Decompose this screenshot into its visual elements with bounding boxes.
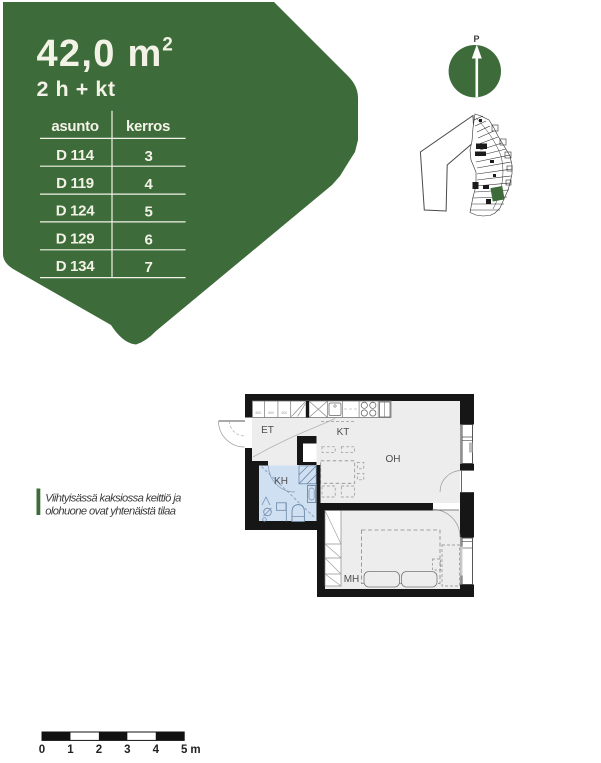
svg-text:m: m bbox=[190, 744, 200, 756]
svg-text:5: 5 bbox=[181, 744, 188, 756]
svg-text:3: 3 bbox=[124, 744, 130, 756]
svg-text:asunto: asunto bbox=[51, 118, 99, 135]
svg-text:kerros: kerros bbox=[126, 118, 170, 135]
svg-text:1: 1 bbox=[67, 744, 74, 756]
svg-text:2 h + kt: 2 h + kt bbox=[37, 77, 116, 101]
svg-text:2: 2 bbox=[96, 744, 102, 756]
svg-text:D 114: D 114 bbox=[56, 147, 95, 164]
svg-text:KT: KT bbox=[337, 427, 350, 438]
svg-text:D 124: D 124 bbox=[56, 203, 95, 220]
svg-text:7: 7 bbox=[144, 259, 152, 276]
svg-text:5: 5 bbox=[144, 204, 152, 221]
svg-text:D 129: D 129 bbox=[56, 230, 95, 247]
svg-text:600: 600 bbox=[268, 411, 274, 415]
svg-text:0: 0 bbox=[39, 744, 45, 756]
svg-text:42,0 m: 42,0 m bbox=[37, 33, 163, 75]
svg-text:6: 6 bbox=[144, 231, 152, 248]
svg-text:Viihtyisässä kaksiossa keittiö: Viihtyisässä kaksiossa keittiö ja bbox=[45, 492, 181, 504]
svg-text:olohuone ovat yhtenäistä tilaa: olohuone ovat yhtenäistä tilaa bbox=[45, 505, 175, 517]
svg-text:D 119: D 119 bbox=[56, 175, 94, 192]
svg-text:P: P bbox=[473, 34, 479, 44]
svg-text:600: 600 bbox=[281, 411, 287, 415]
svg-text:MH: MH bbox=[344, 574, 360, 585]
svg-text:600: 600 bbox=[255, 411, 261, 415]
svg-text:D 134: D 134 bbox=[56, 258, 95, 275]
svg-text:4: 4 bbox=[144, 176, 153, 193]
svg-text:OH: OH bbox=[386, 454, 401, 465]
svg-text:ET: ET bbox=[261, 425, 274, 436]
svg-text:2: 2 bbox=[162, 35, 173, 56]
svg-text:KH: KH bbox=[274, 476, 288, 487]
svg-text:4: 4 bbox=[153, 744, 160, 756]
svg-text:3: 3 bbox=[144, 148, 152, 165]
